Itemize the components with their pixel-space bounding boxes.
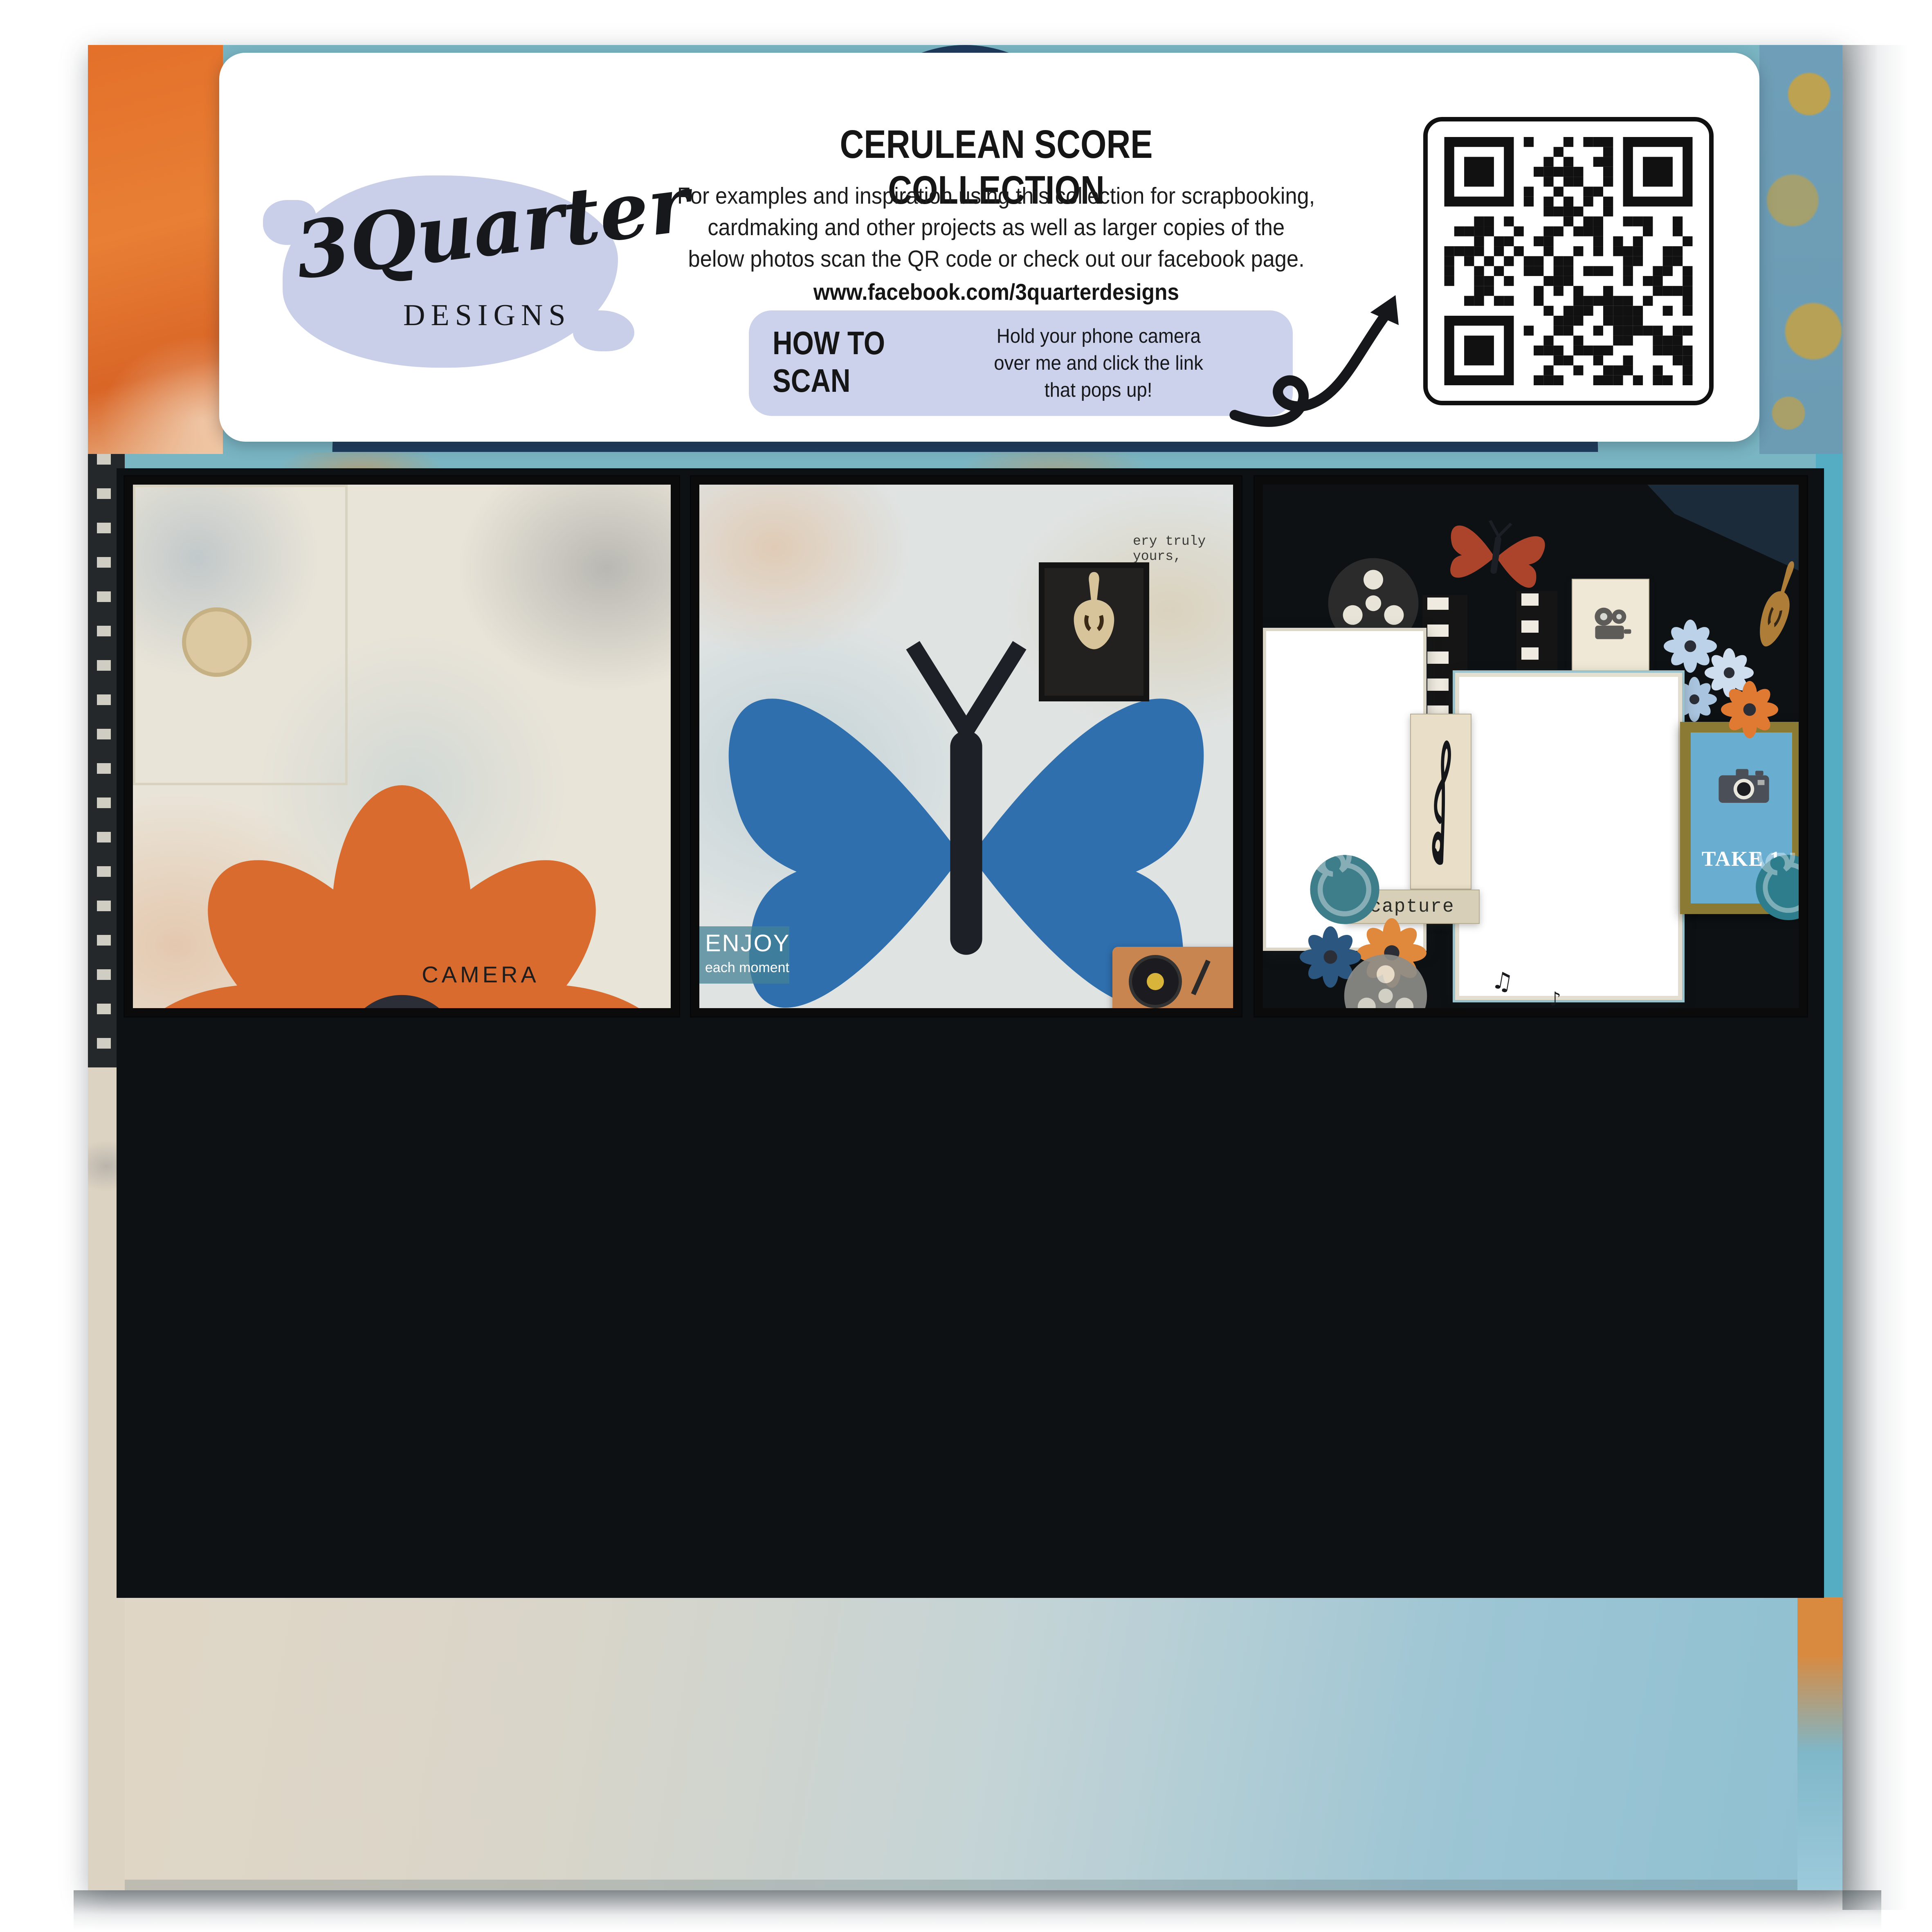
enjoy-caption: ENJOY each moment [699, 926, 789, 984]
how-to-scan-label: HOW TOSCAN [773, 324, 885, 400]
package-photo: { "header": { "title": "CERULEAN SCORE C… [0, 0, 1932, 1932]
brand-name: 3Quarter [290, 168, 610, 297]
header-panel: 3Quarter DESIGNS CERULEAN SCORE COLLECTI… [219, 53, 1759, 442]
background-rightbottom [1797, 1597, 1842, 1890]
package-back: 3Quarter DESIGNS CERULEAN SCORE COLLECTI… [88, 45, 1842, 1890]
layout-example-2: ery truly yours, dream ENJOY each moment… [691, 476, 1241, 1016]
camera-word: CAMERA [415, 961, 546, 988]
qr-code-pattern [1443, 137, 1694, 385]
sheet-music-chip [1572, 579, 1649, 673]
scan-instruction: Hold your phone camera over me and click… [941, 323, 1256, 404]
rose-icon [1754, 853, 1807, 922]
typewriter-text: ery truly yours, [1133, 534, 1239, 564]
photo-placeholder [1455, 673, 1682, 1000]
filmstrip [1516, 591, 1557, 685]
brand-logo: 3Quarter DESIGNS [283, 175, 618, 368]
flower-icon [1721, 681, 1778, 738]
film-reel-icon [1341, 951, 1431, 1016]
background-bottom-wash [125, 1597, 1816, 1890]
music-note-icon: ♪ [1549, 988, 1561, 1010]
gramophone-icon [1589, 604, 1634, 649]
layout-example-3: TAKE 1 capture ♫ ♪ [1255, 476, 1807, 1016]
camera-icon [1715, 757, 1772, 814]
filmstrip [695, 476, 867, 579]
background-gold-roses-band [1759, 45, 1842, 454]
moth-icon [1437, 502, 1555, 606]
photo-shadow [1842, 45, 1908, 1910]
brand-subtitle: DESIGNS [403, 298, 571, 333]
rose-icon [1308, 853, 1382, 926]
clock-icon [182, 607, 252, 677]
background-orange-corner [88, 45, 223, 454]
violin-icon [1045, 662, 1143, 669]
curved-arrow-icon [1211, 257, 1432, 425]
music-clef-icon [1415, 731, 1468, 866]
layout-example-1: believe imagine create CAMERA ♫ [125, 476, 679, 1016]
photo-shadow [74, 1890, 1881, 1931]
record-player-icon [1112, 947, 1241, 1016]
framed-violin [1039, 562, 1149, 701]
clef-chip [1410, 714, 1471, 890]
qr-code [1423, 117, 1714, 405]
